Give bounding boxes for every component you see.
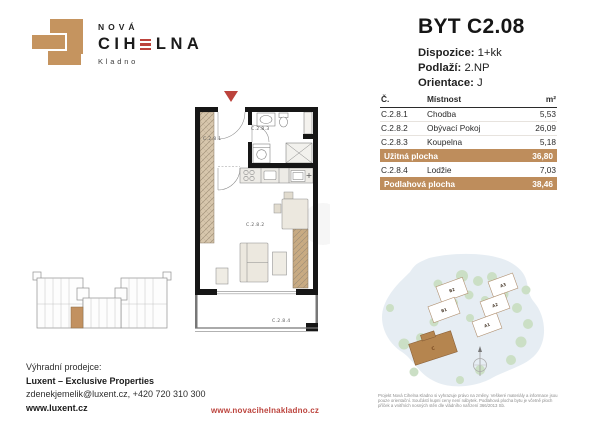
seller-name: Luxent – Exclusive Properties: [26, 375, 206, 389]
brick-logo-icon: [25, 19, 85, 71]
brand-logo: NOVÁ CIH LNA Kladno: [25, 19, 203, 71]
floorplan-sheet: NOVÁ CIH LNA Kladno BYT C2.08 Dispozice:…: [0, 0, 600, 423]
table-row: C.2.8.1 Chodba 5,53: [380, 108, 557, 122]
room-label-living: C.2.8.2: [246, 222, 264, 228]
spec-orientace-label: Orientace:: [418, 77, 474, 89]
side-unit-icon: [216, 268, 228, 284]
table-row: C.2.8.2 Obývací Pokoj 26,09: [380, 122, 557, 136]
subtotal-value: 36,80: [532, 151, 553, 161]
brand-logo-text: NOVÁ CIH LNA Kladno: [98, 19, 203, 66]
brand-name-pre: CIH: [98, 35, 140, 54]
cell-number: C.2.8.3: [381, 137, 427, 147]
entrance-marker-icon: [224, 91, 238, 102]
site-plan: B2 B1 A3 A2 A1 C: [374, 250, 560, 392]
unit-title-block: BYT C2.08 Dispozice: 1+kk Podlaží: 2.NP …: [418, 15, 525, 91]
apartment-floorplan: C.2.8.1 C.2.8.3 C.2.8.2 C.2.8.4: [185, 82, 330, 347]
table-row: C.2.8.4 Lodžie 7,03: [380, 163, 557, 176]
shower-icon: [286, 143, 312, 163]
spec-dispozice-label: Dispozice:: [418, 47, 475, 59]
cell-area: 5,18: [526, 137, 556, 147]
room-label-bath: C.2.8.3: [251, 126, 269, 132]
cell-number: C.2.8.1: [381, 109, 427, 119]
brand-e-bars-icon: [140, 39, 151, 51]
subtotal-band: Užitná plocha 36,80: [380, 149, 557, 162]
total-band: Podlahová plocha 38,46: [380, 177, 557, 190]
highlighted-unit: [71, 307, 83, 328]
cell-area: 5,53: [526, 109, 556, 119]
toilet-icon: [279, 113, 288, 127]
col-header-room: Místnost: [427, 94, 526, 104]
loggia: [195, 295, 318, 332]
cell-room: Lodžie: [427, 165, 526, 175]
room-label-loggia: C.2.8.4: [272, 318, 290, 324]
floor-overview-plan: [27, 262, 177, 340]
spec-podlazi: Podlaží: 2.NP: [418, 61, 525, 76]
spec-orientace-value: J: [477, 77, 483, 89]
seller-website-link[interactable]: www.luxent.cz: [26, 402, 206, 416]
wardrobe-living: [293, 229, 308, 288]
cell-room: Koupelna: [427, 137, 526, 147]
spec-dispozice: Dispozice: 1+kk: [418, 46, 525, 61]
washing-machine-icon: [253, 144, 270, 163]
col-header-number: Č.: [381, 94, 427, 104]
kitchen-counter: [240, 168, 313, 183]
unit-title: BYT C2.08: [418, 15, 525, 39]
subtotal-label: Užitná plocha: [384, 151, 438, 161]
brand-name-post: LNA: [156, 35, 203, 54]
spec-podlazi-label: Podlaží:: [418, 62, 461, 74]
brand-name-main: CIH LNA: [98, 35, 203, 54]
living-door-swing: [218, 167, 240, 191]
washbasin-icon: [257, 113, 275, 126]
col-header-area: m²: [526, 94, 556, 104]
loggia-window: [217, 292, 296, 294]
cell-area: 7,03: [526, 165, 556, 175]
project-website-link[interactable]: www.novacihelnakladno.cz: [211, 406, 319, 415]
cell-area: 26,09: [526, 123, 556, 133]
seller-contact[interactable]: zdenekjemelik@luxent.cz, +420 720 310 30…: [26, 388, 206, 402]
legal-disclaimer: Projekt Nová Cihelna Kladno si vyhrazuje…: [378, 393, 561, 409]
spec-dispozice-value: 1+kk: [478, 47, 502, 59]
room-area-table: Č. Místnost m² C.2.8.1 Chodba 5,53 C.2.8…: [380, 93, 557, 191]
cell-number: C.2.8.2: [381, 123, 427, 133]
brand-city: Kladno: [98, 57, 203, 66]
seller-block: Výhradní prodejce: Luxent – Exclusive Pr…: [26, 361, 206, 415]
entrance-door-swing: [218, 112, 245, 139]
room-label-hall: C.2.8.1: [203, 136, 221, 142]
total-label: Podlahová plocha: [384, 179, 455, 189]
dining-table-icon: [274, 192, 308, 229]
total-value: 38,46: [532, 179, 553, 189]
sofa-icon: [240, 243, 268, 282]
wardrobe-hall: [200, 112, 214, 243]
brand-name-top: NOVÁ: [98, 22, 203, 32]
table-row: C.2.8.3 Koupelna 5,18: [380, 136, 557, 149]
spec-orientace: Orientace: J: [418, 76, 525, 91]
unit-specs: Dispozice: 1+kk Podlaží: 2.NP Orientace:…: [418, 46, 525, 91]
cell-room: Obývací Pokoj: [427, 123, 526, 133]
seller-label: Výhradní prodejce:: [26, 361, 206, 375]
spec-podlazi-value: 2.NP: [464, 62, 489, 74]
cell-number: C.2.8.4: [381, 165, 427, 175]
coffee-table-icon: [273, 252, 287, 275]
table-header-row: Č. Místnost m²: [380, 93, 557, 108]
sink-icon: [264, 171, 276, 180]
bath-cabinet-icon: [304, 112, 312, 134]
cell-room: Chodba: [427, 109, 526, 119]
